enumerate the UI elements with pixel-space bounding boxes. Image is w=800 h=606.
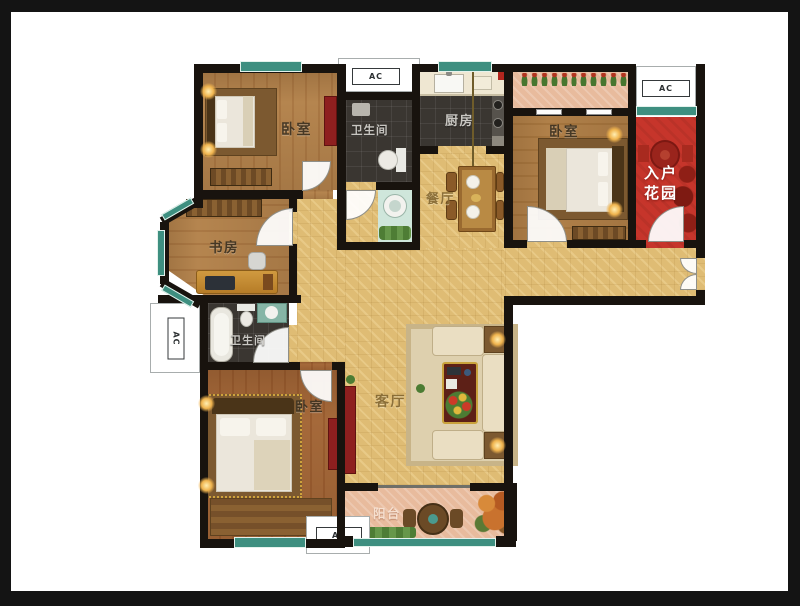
bedroom-tl-headboard xyxy=(207,94,215,148)
door-gap-patch xyxy=(438,146,486,154)
floor-plan: AC AC AC AC 卧室 卫生间 厨房 餐厅 卧室 入户花园 书房 卫生间 … xyxy=(0,0,800,606)
bedroom-tr-pillow xyxy=(598,182,608,206)
room-label-living: 客厅 xyxy=(375,391,406,411)
window-slit xyxy=(536,109,562,115)
wall xyxy=(337,242,420,250)
bedroom-tr-blanket xyxy=(546,148,568,210)
door-gap-patch xyxy=(303,190,333,199)
lamp-glow xyxy=(200,83,217,100)
bay-window xyxy=(157,230,165,276)
floor-hall-left xyxy=(297,250,345,362)
wall xyxy=(194,190,303,199)
sliding-door xyxy=(378,485,470,488)
tv-cabinet xyxy=(344,386,356,474)
wall xyxy=(567,240,646,248)
door-gap-patch xyxy=(346,182,376,190)
bedroom-tr-pillow xyxy=(598,152,608,176)
room-label-kitchen: 厨房 xyxy=(445,110,474,129)
dining-plate xyxy=(466,205,480,219)
dining-plate xyxy=(466,175,480,189)
wall xyxy=(504,240,527,248)
kitchen-cutting-board xyxy=(472,76,492,90)
sink-basin xyxy=(265,306,278,319)
flower-bed-plants xyxy=(521,73,627,87)
bedroom-bl-pillow xyxy=(256,418,286,436)
dining-chair xyxy=(496,200,504,220)
bathtub-inner xyxy=(214,313,229,356)
bedroom-tl-wardrobe xyxy=(210,168,272,186)
toilet xyxy=(240,311,253,327)
wall xyxy=(504,296,705,305)
garden-mat xyxy=(682,145,693,162)
window xyxy=(438,61,492,72)
bedroom-bl-headboard xyxy=(212,398,294,414)
lamp-glow xyxy=(489,437,506,454)
loveseat-top xyxy=(432,326,484,356)
bedroom-tl-pillow xyxy=(217,100,227,119)
room-label-bathroom-left: 卫生间 xyxy=(230,332,266,348)
wall xyxy=(337,362,345,547)
balcony-stool xyxy=(403,509,416,528)
toilet-tank xyxy=(237,304,255,311)
room-label-bedroom-bl: 卧室 xyxy=(295,396,324,415)
dining-dish xyxy=(471,194,481,202)
balcony-railing xyxy=(353,538,496,547)
room-label-bedroom-tl: 卧室 xyxy=(281,119,312,139)
door-gap-patch xyxy=(300,362,332,370)
bathroom-top-toilet xyxy=(378,150,398,170)
loveseat-bottom xyxy=(432,430,484,460)
wall xyxy=(504,483,517,541)
bathroom-top-sink xyxy=(352,103,370,116)
study-chair xyxy=(248,252,266,270)
bedroom-bl-pillow xyxy=(220,418,250,436)
flower-bouquet xyxy=(444,390,474,420)
wall xyxy=(696,64,705,116)
lamp-glow xyxy=(198,395,215,412)
balcony-table-center xyxy=(428,514,438,524)
ac-unit-icon: AC xyxy=(352,68,400,85)
wall xyxy=(337,92,420,100)
wall xyxy=(345,536,353,547)
room-label-study: 书房 xyxy=(209,236,239,256)
study-desk-item xyxy=(263,274,273,290)
wall xyxy=(513,64,628,72)
wall xyxy=(200,303,208,547)
coffee-table-item xyxy=(464,369,471,376)
floor-hall-strip xyxy=(297,199,337,250)
window xyxy=(240,61,302,72)
bedroom-bl-blanket xyxy=(254,440,290,490)
window xyxy=(234,537,306,548)
wall xyxy=(504,64,513,248)
dining-chair xyxy=(496,172,504,192)
bedroom-tl-dresser xyxy=(324,96,337,146)
room-label-bedroom-tr: 卧室 xyxy=(549,120,579,140)
room-label-dining: 餐厅 xyxy=(426,188,455,207)
lamp-glow xyxy=(198,477,215,494)
wall xyxy=(200,362,300,370)
garden-mat xyxy=(638,145,649,162)
window xyxy=(636,106,697,116)
kitchen-burner xyxy=(493,118,503,128)
coffee-table-item xyxy=(447,367,461,375)
lamp-glow xyxy=(489,331,506,348)
study-laptop xyxy=(205,276,235,290)
room-label-bathroom-top: 卫生间 xyxy=(351,122,389,138)
window-slit xyxy=(586,109,612,115)
room-label-balcony: 阳台 xyxy=(373,503,401,522)
bedroom-tl-pillow xyxy=(217,123,227,142)
kitchen-sink xyxy=(434,74,464,93)
lamp-glow xyxy=(606,201,623,218)
lamp-glow xyxy=(606,126,623,143)
balcony-stool xyxy=(450,509,463,528)
potted-plant xyxy=(416,384,425,393)
wall xyxy=(684,240,705,248)
wall xyxy=(696,112,705,258)
washer-drum xyxy=(389,200,401,212)
alcove-plants xyxy=(379,226,411,240)
ac-unit-icon: AC xyxy=(168,318,185,360)
door-gap-patch xyxy=(696,258,705,290)
lamp-glow xyxy=(200,141,217,158)
garden-rug-center xyxy=(660,150,670,160)
bedroom-tl-blanket xyxy=(243,96,253,146)
bedroom-tr-wardrobe xyxy=(572,226,626,240)
wall xyxy=(628,64,636,116)
wall xyxy=(504,296,513,492)
ac-unit-icon: AC xyxy=(642,80,690,97)
wall xyxy=(412,146,438,154)
kitchen-burner xyxy=(493,100,503,110)
potted-plant xyxy=(346,375,355,384)
wall xyxy=(628,112,636,248)
wall xyxy=(496,536,516,547)
coffee-table-item xyxy=(446,379,457,389)
wall xyxy=(412,64,420,250)
door-gap-patch xyxy=(289,325,297,362)
room-label-entry-garden: 入户花园 xyxy=(640,163,682,203)
wall xyxy=(345,483,378,491)
